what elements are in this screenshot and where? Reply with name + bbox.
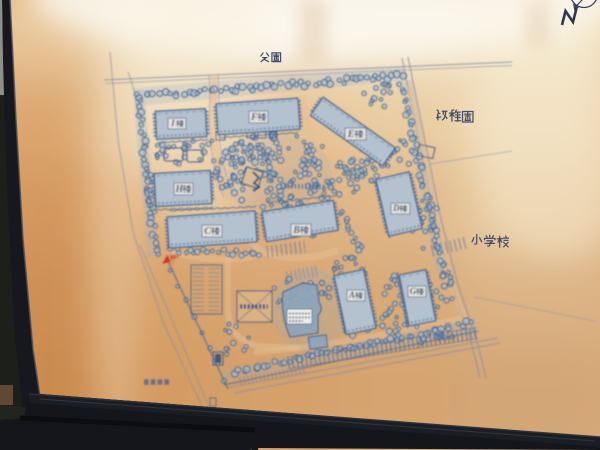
- svg-text:C: C: [204, 226, 211, 237]
- svg-text:E: E: [347, 129, 355, 140]
- svg-text:A: A: [348, 290, 355, 300]
- svg-text:I: I: [170, 118, 175, 128]
- svg-text:G: G: [410, 286, 417, 296]
- svg-text:F: F: [250, 112, 258, 123]
- svg-text:B: B: [292, 225, 300, 236]
- svg-text:D: D: [392, 203, 400, 213]
